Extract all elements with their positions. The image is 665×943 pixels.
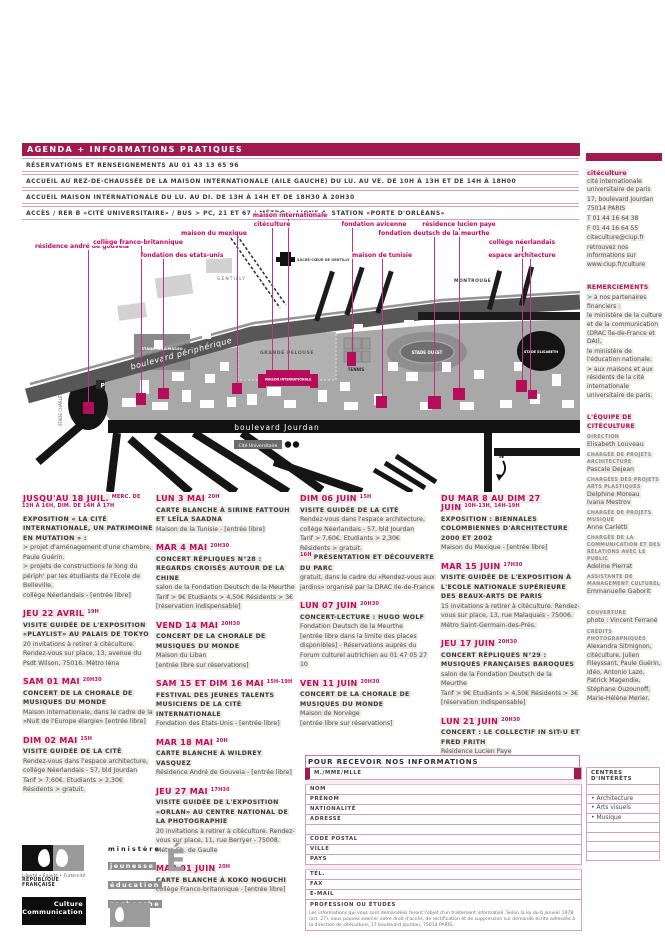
map-building-label: fondation deutsch de la meurthe bbox=[377, 230, 490, 237]
event-date: LUN 21 JUIN 20H30 bbox=[440, 717, 580, 726]
event-line: Tarif > 9€ Etudiants > 4,50€ Résidents >… bbox=[440, 689, 580, 699]
culture-line-2: Communication bbox=[22, 908, 83, 916]
event-date-text: VEND 14 MAI bbox=[155, 621, 219, 630]
subscription-form: POUR RECEVOIR NOS INFORMATIONS M./MME/ML… bbox=[305, 755, 661, 769]
sidebar-line: DIRECTION bbox=[586, 434, 662, 441]
event-line-text: 20 invitations à retirer à citéculture. … bbox=[22, 641, 142, 667]
sidebar-heading: L'ÉQUIPE DE CITÉCULTURE bbox=[586, 414, 662, 431]
sidebar-line: 75014 PARIS bbox=[586, 205, 662, 214]
form-field-label: M./MME/MLLE bbox=[310, 768, 581, 779]
event-line-text: CONCERT DE LA CHORALE DE MUSIQUES DU MON… bbox=[155, 633, 267, 650]
event-line-text: Résidence Lucien Paye bbox=[440, 748, 512, 755]
sidebar-line-text: Emmanuelle Gaborit bbox=[586, 588, 652, 595]
event-line-text: VISITE GUIDÉE DE LA CITÉ bbox=[299, 507, 400, 514]
event-date-text: VEN 11 JUIN bbox=[299, 679, 359, 688]
sidebar-line-text: DIRECTION bbox=[586, 435, 620, 440]
event-line-text: > projet d'aménagement d'une chambre, Pa… bbox=[22, 544, 153, 561]
event-time: 15H bbox=[78, 736, 92, 742]
event-line: CARTE BLANCHE À SIRINE FATTOUH ET LEÏLA … bbox=[155, 506, 296, 525]
label-leader-line bbox=[272, 228, 273, 370]
interest-item: • Architecture bbox=[586, 795, 660, 805]
event-line-text: salon de la Fondation Deutsch de la Meur… bbox=[440, 671, 553, 688]
event-line-text: Tarif > 9€ Etudiants > 4,50€ Résidents >… bbox=[440, 690, 579, 697]
form-field-label: PAYS bbox=[306, 855, 581, 864]
event-line-text: Maison du Mexique - [entrée libre] bbox=[440, 544, 548, 551]
event-line: VISITE GUIDÉE DE LA CITÉ bbox=[299, 506, 437, 516]
event-time: 19H bbox=[85, 609, 99, 615]
logo-ministere-education: ministère jeunesse éducation recherche É bbox=[108, 845, 180, 910]
event-date-text: LUN 21 JUIN bbox=[440, 717, 499, 726]
event-date: DU MAR 8 AU DIM 27 JUIN 10H-13H, 14H-19H bbox=[440, 494, 580, 512]
event-line: EXPOSITION : BIENNALES COLOMBIENNES D'AR… bbox=[440, 515, 580, 544]
page-title: AGENDA + INFORMATIONS PRATIQUES bbox=[22, 143, 580, 156]
interests-title: CENTRES D'INTÉRÊTS bbox=[586, 768, 660, 785]
event-date-text: JEU 17 JUIN bbox=[440, 639, 496, 648]
sidebar-heading-text: REMERCIEMENTS bbox=[586, 284, 650, 291]
label-leader-line bbox=[382, 259, 383, 396]
sidebar-line-text: citéculture bbox=[586, 169, 628, 177]
event-time: 10H-13H, 14H-19H bbox=[462, 503, 520, 509]
event-line-text: collège Néerlandais - [entrée libre] bbox=[22, 592, 132, 599]
event: MAR 4 MAI 20H30CONCERT RÉPLIQUES N°28 : … bbox=[155, 543, 296, 612]
event-time: 20H30 bbox=[359, 679, 380, 685]
sidebar-line: Pascale Dejean bbox=[586, 466, 662, 474]
form-field-row: FAX bbox=[305, 880, 582, 890]
sidebar-accent-bar bbox=[586, 153, 662, 161]
event-line: CONCERT DE LA CHORALE DE MUSIQUES DU MON… bbox=[299, 690, 437, 709]
sidebar-heading: REMERCIEMENTS bbox=[586, 284, 662, 293]
event: VEN 11 JUIN 20H30CONCERT DE LA CHORALE D… bbox=[299, 679, 437, 729]
mjer-line-jeunesse: jeunesse bbox=[108, 862, 156, 870]
sidebar-line: Alexandra Sitmignon, citéculture, Julien… bbox=[586, 643, 662, 703]
event-line: Maison de la Tunisie - [entrée libre] bbox=[155, 525, 296, 535]
sidebar-line-text: retrouvez nos informations sur www.ciup.… bbox=[586, 244, 646, 268]
event-line-text: CONCERT DE LA CHORALE DE MUSIQUES DU MON… bbox=[299, 691, 411, 708]
interests-table: CENTRES D'INTÉRÊTS • Architecture• Arts … bbox=[586, 767, 660, 861]
sidebar-line-text: Delphine Moreau bbox=[586, 491, 641, 498]
label-leader-line bbox=[434, 237, 435, 396]
event-line: collège Néerlandais - [entrée libre] bbox=[22, 591, 153, 601]
form-field-label: PRÉNOM bbox=[306, 795, 581, 804]
event: SAM 15 ET DIM 16 MAI 15H-19HFESTIVAL DES… bbox=[155, 679, 296, 729]
interest-blank-row bbox=[586, 852, 660, 862]
event-date: MAR 18 MAI 20H bbox=[155, 738, 296, 747]
event-line: Maison de Norvège bbox=[299, 709, 437, 719]
event-line-text: Tarif > 7,60€. Etudiants > 2,30€ bbox=[22, 777, 124, 784]
logos: Liberté • Égalité • Fraternité RÉPUBLIQU… bbox=[22, 845, 182, 940]
sidebar-line: Elisabeth Louveau bbox=[586, 441, 662, 449]
page: AGENDA + INFORMATIONS PRATIQUES RÉSERVAT… bbox=[0, 0, 665, 943]
event-line: CARTE BLANCHE À WILDREY VASQUEZ bbox=[155, 749, 296, 768]
map-building-label: fondation avicenne bbox=[340, 221, 407, 228]
event-line-text: Rendez-vous dans l'espace architecture, … bbox=[299, 516, 426, 533]
label-leader-line bbox=[163, 259, 164, 388]
event-line-text: CARTE BLANCHE À SIRINE FATTOUH ET LEÏLA … bbox=[155, 507, 291, 524]
sidebar-line: ASSISTANTE DE MANAGEMENT CULTUREL bbox=[586, 574, 662, 588]
event-line: Maison internationale, dans le cadre de … bbox=[22, 708, 153, 727]
event-line: CONCERT RÉPLIQUES N°29 : MUSIQUES FRANÇA… bbox=[440, 651, 580, 670]
event-time: 20H bbox=[206, 494, 220, 500]
event-line-text: [entrée libre sur réservations] bbox=[155, 662, 250, 669]
event-line-text: CONCERT RÉPLIQUES N°28 : REGARDS CROISÉS… bbox=[155, 556, 286, 582]
event-time: 20H30 bbox=[358, 601, 379, 607]
event-line-text: Résidents > gratuit. bbox=[299, 545, 363, 552]
logo-ministere-culture: Culture Communication bbox=[22, 897, 86, 925]
event-line-text: EXPOSITION « LA CITÉ INTERNATIONALE, UN … bbox=[22, 516, 154, 542]
map-building-label: maison du mexique bbox=[180, 230, 248, 237]
event-line-text: Maison de la Tunisie - [entrée libre] bbox=[155, 526, 266, 533]
sidebar-line: le ministère de l'éducation nationale. bbox=[586, 348, 662, 365]
event-line: [entrée libre sur réservations] bbox=[299, 719, 437, 729]
event-line: Tarif > 7,60€. Etudiants > 2,30€ bbox=[299, 534, 437, 544]
form-row-end-accent bbox=[574, 768, 581, 779]
form-field-row: CODE POSTAL bbox=[305, 835, 582, 845]
event-line: salon de la Fondation Deutsch de la Meur… bbox=[155, 583, 296, 593]
map-overlay: résidence andré de gouveiacollège franco… bbox=[22, 212, 580, 492]
event-line-text: FESTIVAL DES JEUNES TALENTS MUSICIENS DE… bbox=[155, 692, 275, 718]
event-line-text: Fondation des Etats-Unis - [entrée libre… bbox=[155, 720, 281, 727]
label-leader-line bbox=[522, 246, 523, 380]
event-line-text: VISITE GUIDÉE DE L'EXPOSITION «PLAYLIST»… bbox=[22, 622, 150, 639]
sidebar-line-text: cité internationale universitaire de par… bbox=[586, 178, 652, 194]
event-line-text: Tarif > 9€ Etudiants > 4,50€ Résidents >… bbox=[155, 594, 294, 601]
form-field-label: CODE POSTAL bbox=[306, 835, 581, 844]
event-date: SAM 01 MAI 20H30 bbox=[22, 677, 153, 686]
sidebar-line-text: le ministère de l'éducation nationale. bbox=[586, 348, 653, 364]
marianne-icon bbox=[22, 845, 84, 871]
events-column: JUSQU'AU 18 JUIL. MERC. DE 13H À 16H, DI… bbox=[22, 494, 153, 804]
event: JEU 17 JUIN 20H30CONCERT RÉPLIQUES N°29 … bbox=[440, 639, 580, 708]
event-line-text: salon de la Fondation Deutsch de la Meur… bbox=[155, 584, 296, 591]
event-line-text: Maison du Liban bbox=[155, 652, 207, 659]
sidebar-line-text: CHARGÉE DE LA COMMUNICATION ET DES RELAT… bbox=[586, 536, 661, 562]
form-field-row: VILLE bbox=[305, 845, 582, 855]
event: JEU 22 AVRIL 19HVISITE GUIDÉE DE L'EXPOS… bbox=[22, 609, 153, 668]
event-line: Tarif > 7,60€. Etudiants > 2,30€ bbox=[22, 776, 153, 786]
event-line: CONCERT DE LA CHORALE DE MUSIQUES DU MON… bbox=[155, 632, 296, 651]
map-building-label: collège franco-britannique bbox=[92, 239, 184, 246]
sidebar-line: Anne Carletti bbox=[586, 524, 662, 532]
interest-blank-row bbox=[586, 823, 660, 833]
event-line-time: 16H bbox=[300, 552, 314, 558]
sidebar-line: CHARGÉE DE LA COMMUNICATION ET DES RELAT… bbox=[586, 535, 662, 563]
form-field-label: NATIONALITÉ bbox=[306, 805, 581, 814]
event-line: CONCERT DE LA CHORALE DE MUSIQUES DU MON… bbox=[22, 689, 153, 708]
event: DIM 06 JUIN 15HVISITE GUIDÉE DE LA CITÉR… bbox=[299, 494, 437, 592]
event-line-text: [réservation indispensable] bbox=[440, 699, 527, 706]
logo-republique-francaise: Liberté • Égalité • Fraternité RÉPUBLIQU… bbox=[22, 845, 88, 888]
sidebar-line-text: COUVERTURE bbox=[586, 611, 627, 616]
event-date-text: JEU 27 MAI bbox=[155, 787, 209, 796]
sidebar-line: CRÉDITS PHOTOGRAPHIQUES bbox=[586, 629, 662, 643]
label-leader-line bbox=[530, 259, 531, 390]
event-line-text: Résidents > gratuit. bbox=[22, 786, 86, 793]
interest-blank-row bbox=[586, 785, 660, 795]
sidebar-line: photo : Vincent Ferrané bbox=[586, 617, 662, 626]
sidebar-line-text: T 01 44 16 64 38 bbox=[586, 215, 639, 222]
sidebar-line-text: CHARGÉE DE PROJETS ARCHITECTURE bbox=[586, 453, 653, 465]
form-field-row: PAYS bbox=[305, 855, 582, 865]
sidebar-line-text: > aux maisons et aux résidents de la cit… bbox=[586, 366, 654, 399]
sidebar-line-text: Ivana Mestrov bbox=[586, 499, 632, 506]
event-line-text: Résidence André de Gouveia - [entrée lib… bbox=[155, 769, 293, 776]
event-line: CONCERT : LE COLLECTIF IN SIT-U ET FRED … bbox=[440, 728, 580, 747]
event-date-text: LUN 3 MAI bbox=[155, 494, 206, 503]
event-line-text: [entrée libre sur réservations] bbox=[299, 720, 394, 727]
sidebar-line: Delphine Moreau bbox=[586, 491, 662, 499]
sidebar-line: Ivana Mestrov bbox=[586, 499, 662, 507]
interest-item: • Arts visuels bbox=[586, 804, 660, 814]
sidebar-line-text: CRÉDITS PHOTOGRAPHIQUES bbox=[586, 630, 647, 642]
event-line: Tarif > 9€ Etudiants > 4,50€ Résidents >… bbox=[155, 593, 296, 603]
label-leader-line bbox=[459, 228, 460, 388]
sidebar-line-text: le ministère de la culture et de la comm… bbox=[586, 312, 663, 345]
event-time: 15H-19H bbox=[265, 679, 293, 685]
interest-rows: • Architecture• Arts visuels• Musique bbox=[586, 785, 660, 861]
map-building-label: maison internationale bbox=[252, 212, 328, 219]
sidebar-line: 17, boulevard Jourdan bbox=[586, 196, 662, 205]
form-blank-row bbox=[305, 825, 582, 835]
event-line-text: CONCERT : LE COLLECTIF IN SIT-U ET FRED … bbox=[440, 729, 581, 746]
event-date-text: DIM 02 MAI bbox=[22, 736, 78, 745]
campus-map: GENTILLY MONTROUGE SACRÉ-CŒUR DE GENTILL… bbox=[22, 212, 580, 492]
event-line: VISITE GUIDÉE DE L'EXPOSITION «ORLAN» AU… bbox=[155, 798, 296, 827]
event: LUN 3 MAI 20HCARTE BLANCHE À SIRINE FATT… bbox=[155, 494, 296, 534]
sidebar-line: F 01 44 16 64 55 bbox=[586, 225, 662, 234]
event-line: > projets de constructions le long du pé… bbox=[22, 562, 153, 591]
sidebar-line-text: ASSISTANTE DE MANAGEMENT CULTUREL bbox=[586, 575, 661, 587]
event-line-text: Rendez-vous dans l'espace architecture, … bbox=[22, 758, 149, 775]
label-leader-line bbox=[141, 246, 142, 393]
event-line: gratuit, dans le cadre du «Rendez-vous a… bbox=[299, 573, 437, 592]
event: DU MAR 8 AU DIM 27 JUIN 10H-13H, 14H-19H… bbox=[440, 494, 580, 553]
sidebar-line-text: F 01 44 16 64 55 bbox=[586, 225, 639, 232]
event-line-text: 15 invitations à retirer à citéculture. … bbox=[440, 603, 581, 629]
event-line-text: [entrée libre dans la limite des places … bbox=[299, 633, 428, 669]
event-date: JEU 22 AVRIL 19H bbox=[22, 609, 153, 618]
map-building-label: espace architecture bbox=[487, 252, 556, 259]
event-line-text: > projets de constructions le long du pé… bbox=[22, 563, 141, 589]
event-time: 20H bbox=[216, 864, 230, 870]
event-time: 20H bbox=[214, 738, 228, 744]
event-date-text: SAM 01 MAI bbox=[22, 677, 81, 686]
event-line-text: CONCERT RÉPLIQUES N°29 : MUSIQUES FRANÇA… bbox=[440, 652, 575, 669]
event: JUSQU'AU 18 JUIL. MERC. DE 13H À 16H, DI… bbox=[22, 494, 153, 600]
event-line: Résidents > gratuit. bbox=[22, 785, 153, 795]
event-line-text: CARTE BLANCHE À WILDREY VASQUEZ bbox=[155, 750, 263, 767]
event-line: [réservation indispensable] bbox=[155, 602, 296, 612]
sidebar-line-text: citeculture@ciup.fr bbox=[586, 234, 645, 241]
sidebar-line: citeculture@ciup.fr bbox=[586, 234, 662, 243]
event-line: 16H PRÉSENTATION ET DÉCOUVERTE DU PARC bbox=[299, 553, 437, 573]
sidebar-line-text: Anne Carletti bbox=[586, 524, 629, 531]
label-leader-line bbox=[88, 250, 89, 402]
sidebar-heading-text: L'ÉQUIPE DE CITÉCULTURE bbox=[586, 414, 636, 430]
event-line: salon de la Fondation Deutsch de la Meur… bbox=[440, 670, 580, 689]
event-date-text: SAM 15 ET DIM 16 MAI bbox=[155, 679, 265, 688]
event: DIM 02 MAI 15HVISITE GUIDÉE DE LA CITÉRe… bbox=[22, 736, 153, 795]
sidebar-line: CHARGÉES DES PROJETS ARTS PLASTIQUES bbox=[586, 477, 662, 491]
event-time: 20H30 bbox=[219, 621, 240, 627]
event-line: VISITE GUIDÉE DE LA CITÉ bbox=[22, 747, 153, 757]
interest-item: • Musique bbox=[586, 814, 660, 824]
sidebar-line-text: CHARGÉES DES PROJETS ARTS PLASTIQUES bbox=[586, 478, 660, 490]
form-legal-text: Les informations qui vous sont demandées… bbox=[305, 909, 582, 931]
event-line-text: Maison internationale, dans le cadre de … bbox=[22, 709, 154, 726]
event-line-text: Fondation Deutsch de la Meurthe bbox=[299, 623, 404, 630]
event-line: Fondation des Etats-Unis - [entrée libre… bbox=[155, 719, 296, 729]
form-field-row: E-MAIL bbox=[305, 890, 582, 900]
sidebar-line-text: CHARGÉE DE PROJETS MUSIQUE bbox=[586, 511, 653, 523]
event-date-text: MAR 15 JUIN bbox=[440, 562, 501, 571]
sidebar-line-text: Elisabeth Louveau bbox=[586, 441, 645, 448]
sidebar-line: citéculture bbox=[586, 169, 662, 178]
event-date: VEND 14 MAI 20H30 bbox=[155, 621, 296, 630]
event-line: [entrée libre sur réservations] bbox=[155, 661, 296, 671]
event-line: VISITE GUIDÉE DE L'EXPOSITION À L'ECOLE … bbox=[440, 573, 580, 602]
sidebar-block: COUVERTUREphoto : Vincent FerranéCRÉDITS… bbox=[586, 610, 662, 703]
sidebar-line-text: Pascale Dejean bbox=[586, 466, 635, 473]
sidebar-line: Adeline Pierrat bbox=[586, 563, 662, 571]
map-building-label: collège néerlandais bbox=[488, 239, 556, 246]
event-line-text: VISITE GUIDÉE DE L'EXPOSITION À L'ECOLE … bbox=[440, 574, 572, 600]
event-date: MAR 15 JUIN 17H30 bbox=[440, 562, 580, 571]
event-line: Fondation Deutsch de la Meurthe bbox=[299, 622, 437, 632]
form-field-label: NOM bbox=[306, 785, 581, 794]
event-line-text: 16H PRÉSENTATION ET DÉCOUVERTE DU PARC bbox=[299, 554, 435, 572]
sidebar-line: > aux maisons et aux résidents de la cit… bbox=[586, 366, 662, 400]
event-time: 20H30 bbox=[208, 543, 229, 549]
map-building-label: citéculture bbox=[253, 221, 292, 228]
sidebar-line-text: Alexandra Sitmignon, citéculture, Julien… bbox=[586, 643, 662, 702]
map-building-label: résidence lucien paye bbox=[421, 221, 497, 228]
event-line: VISITE GUIDÉE DE L'EXPOSITION «PLAYLIST»… bbox=[22, 621, 153, 640]
event-date: LUN 07 JUIN 20H30 bbox=[299, 601, 437, 610]
sidebar-line-text: 75014 PARIS bbox=[586, 205, 626, 212]
label-leader-line bbox=[288, 219, 289, 370]
events-column: DIM 06 JUIN 15HVISITE GUIDÉE DE LA CITÉR… bbox=[299, 494, 437, 737]
event-date: JEU 17 JUIN 20H30 bbox=[440, 639, 580, 648]
event-line-text: EXPOSITION : BIENNALES COLOMBIENNES D'AR… bbox=[440, 516, 569, 542]
sidebar-content: citéculturecité internationale universit… bbox=[586, 169, 662, 703]
sidebar-line-text: 17, boulevard Jourdan bbox=[586, 196, 654, 203]
event-date-text: DIM 06 JUIN bbox=[299, 494, 358, 503]
form-field-label: VILLE bbox=[306, 845, 581, 854]
sidebar-line: le ministère de la culture et de la comm… bbox=[586, 312, 662, 346]
event-line: 15 invitations à retirer à citéculture. … bbox=[440, 602, 580, 631]
form-field-label: FAX bbox=[306, 880, 581, 889]
events-column: LUN 3 MAI 20HCARTE BLANCHE À SIRINE FATT… bbox=[155, 494, 296, 904]
form-field-row: NOM bbox=[305, 785, 582, 795]
event-date: JUSQU'AU 18 JUIL. MERC. DE 13H À 16H, DI… bbox=[22, 494, 153, 512]
event-date-text: JEU 22 AVRIL bbox=[22, 609, 85, 618]
event-date: DIM 06 JUIN 15H bbox=[299, 494, 437, 503]
sidebar-line-text: > à nos partenaires financiers : bbox=[586, 294, 647, 310]
map-building-label: fondation des etats-unis bbox=[140, 252, 225, 259]
event-line: Rendez-vous dans l'espace architecture, … bbox=[299, 515, 437, 534]
sidebar-line: Emmanuelle Gaborit bbox=[586, 588, 662, 596]
event-date: SAM 15 ET DIM 16 MAI 15H-19H bbox=[155, 679, 296, 688]
event-line: Résidents > gratuit. bbox=[299, 544, 437, 554]
event-time: 17H30 bbox=[501, 562, 522, 568]
event-date: MAR 4 MAI 20H30 bbox=[155, 543, 296, 552]
logo-republique-francaise-small bbox=[110, 903, 150, 927]
culture-line-1: Culture bbox=[22, 900, 83, 908]
form-field-label: TÉL. bbox=[306, 870, 581, 879]
event-line: CONCERT RÉPLIQUES N°28 : REGARDS CROISÉS… bbox=[155, 555, 296, 584]
sidebar-line: retrouvez nos informations sur www.ciup.… bbox=[586, 244, 662, 270]
info-row: ACCUEIL AU REZ-DE-CHAUSSÉE DE LA MAISON … bbox=[22, 174, 579, 188]
event-line: > projet d'aménagement d'une chambre, Pa… bbox=[22, 543, 153, 562]
event-line-text: VISITE GUIDÉE DE LA CITÉ bbox=[22, 748, 123, 755]
form-field-row: PRÉNOM bbox=[305, 795, 582, 805]
map-building-label: maison de tunisie bbox=[351, 252, 413, 259]
label-leader-line bbox=[237, 237, 238, 383]
sidebar-block: citéculturecité internationale universit… bbox=[586, 169, 662, 270]
form-field-label: E-MAIL bbox=[306, 890, 581, 899]
sidebar-line: CHARGÉE DE PROJETS ARCHITECTURE bbox=[586, 452, 662, 466]
form-field-row: ADRESSE bbox=[305, 815, 582, 825]
event-time: 17H30 bbox=[209, 787, 230, 793]
sidebar-line: > à nos partenaires financiers : bbox=[586, 294, 662, 311]
sidebar-line: T 01 44 16 64 38 bbox=[586, 215, 662, 224]
event-line: CONCERT-LECTURE : HUGO WOLF bbox=[299, 613, 437, 623]
event-line: FESTIVAL DES JEUNES TALENTS MUSICIENS DE… bbox=[155, 691, 296, 720]
event-line: [réservation indispensable] bbox=[440, 698, 580, 708]
form-rows: M./MME/MLLENOMPRÉNOMNATIONALITÉADRESSECO… bbox=[305, 767, 582, 911]
sidebar-line: cité internationale universitaire de par… bbox=[586, 178, 662, 195]
event-line: Résidence André de Gouveia - [entrée lib… bbox=[155, 768, 296, 778]
event: VEND 14 MAI 20H30CONCERT DE LA CHORALE D… bbox=[155, 621, 296, 671]
sidebar-line: COUVERTURE bbox=[586, 610, 662, 617]
event-time: 20H30 bbox=[81, 677, 102, 683]
form-field-row: TÉL. bbox=[305, 870, 582, 880]
event-line: Maison du Liban bbox=[155, 651, 296, 661]
sidebar-block: REMERCIEMENTS> à nos partenaires financi… bbox=[586, 284, 662, 401]
event-line: [entrée libre dans la limite des places … bbox=[299, 632, 437, 670]
event-date: LUN 3 MAI 20H bbox=[155, 494, 296, 503]
info-row: RÉSERVATIONS ET RENSEIGNEMENTS AU 01 43 … bbox=[22, 158, 579, 172]
event-line-text: VISITE GUIDÉE DE L'EXPOSITION «ORLAN» AU… bbox=[155, 799, 289, 825]
sidebar-block: L'ÉQUIPE DE CITÉCULTUREDIRECTIONElisabet… bbox=[586, 414, 662, 596]
sidebar: citéculturecité internationale universit… bbox=[586, 143, 662, 717]
event-date-text: JUSQU'AU 18 JUIL. bbox=[22, 494, 110, 503]
info-row: ACCUEIL MAISON INTERNATIONALE DU LU. AU … bbox=[22, 190, 579, 204]
label-leader-line bbox=[352, 228, 353, 352]
event-line-text: [réservation indispensable] bbox=[155, 603, 242, 610]
event-time: 20H30 bbox=[499, 717, 520, 723]
event-line: 20 invitations à retirer à citéculture. … bbox=[22, 640, 153, 669]
event-line-text: gratuit, dans le cadre du «Rendez-vous a… bbox=[299, 574, 436, 591]
rf-name: RÉPUBLIQUE FRANÇAISE bbox=[22, 878, 88, 888]
event-line-text: Maison de Norvège bbox=[299, 710, 361, 717]
event-date: DIM 02 MAI 15H bbox=[22, 736, 153, 745]
interest-blank-row bbox=[586, 833, 660, 843]
event-date: JEU 27 MAI 17H30 bbox=[155, 787, 296, 796]
event-line-text: CONCERT-LECTURE : HUGO WOLF bbox=[299, 614, 425, 621]
event-date-text: MAR 18 MAI bbox=[155, 738, 214, 747]
event-date-text: MAR 4 MAI bbox=[155, 543, 208, 552]
mjer-e-icon: É bbox=[166, 847, 187, 877]
form-field-label: ADRESSE bbox=[306, 815, 581, 824]
event-date: VEN 11 JUIN 20H30 bbox=[299, 679, 437, 688]
form-field-row: NATIONALITÉ bbox=[305, 805, 582, 815]
event-time: 15H bbox=[358, 494, 372, 500]
sidebar-line-text: Adeline Pierrat bbox=[586, 563, 633, 570]
interest-blank-row bbox=[586, 842, 660, 852]
event: MAR 18 MAI 20HCARTE BLANCHE À WILDREY VA… bbox=[155, 738, 296, 778]
events-column: DU MAR 8 AU DIM 27 JUIN 10H-13H, 14H-19H… bbox=[440, 494, 580, 775]
